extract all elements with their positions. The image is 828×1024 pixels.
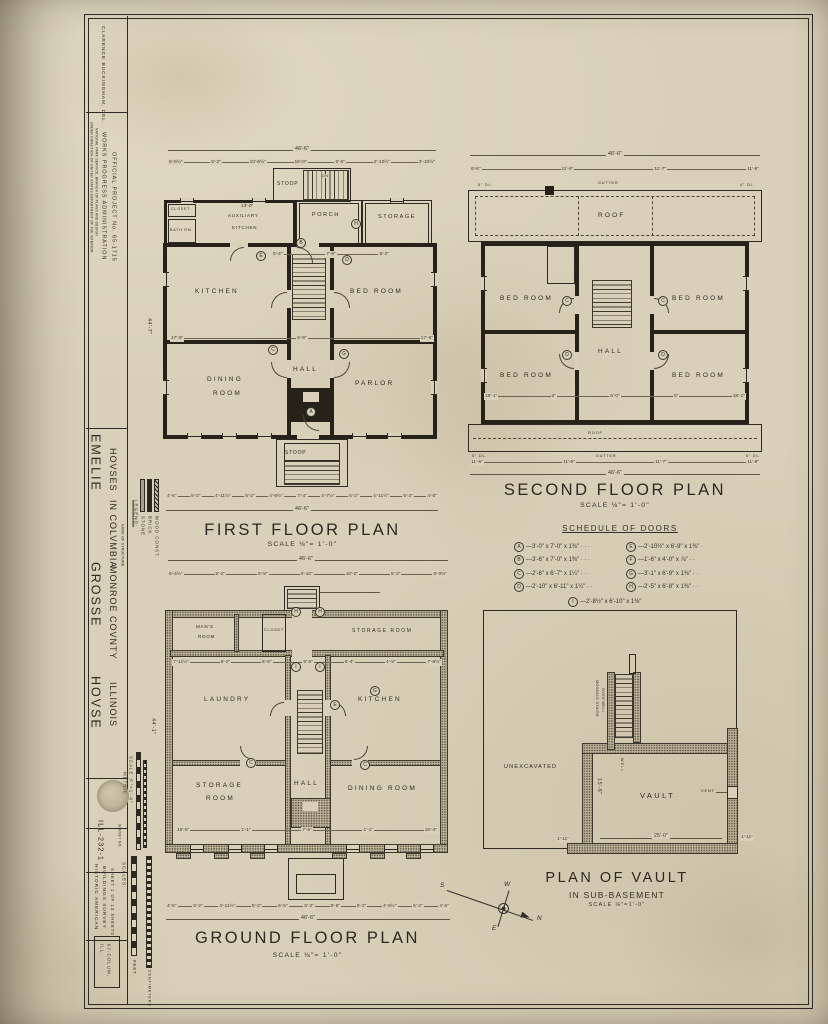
door-letter-mark: C (268, 345, 278, 355)
door-gap (330, 360, 334, 378)
door-letter-mark: C (562, 296, 572, 306)
dimension-label: 5'-2" (303, 903, 315, 910)
dimension-label: 5'-2" (390, 571, 402, 578)
schedule-row: H—2'-5" x 6'-8" x 1⅜" · · (626, 581, 744, 595)
schedule-row: D—2'-10" x 6'-11" x 1¼" · · (514, 581, 622, 595)
survey-number-label: SURVEY NO. (117, 824, 120, 848)
door-letter-circle: I (568, 597, 578, 607)
structure-name-house: HOVSE (89, 676, 102, 730)
dimension-label: 5'-6" (296, 335, 308, 342)
hall-stair (592, 280, 632, 328)
catalog-line-2: 67-COLUM, (106, 944, 111, 977)
dimension-label: 6'-5" (257, 571, 269, 578)
dim-row: 6'-6"11'-9"11'-7"11'-6" (470, 165, 760, 173)
dim-row: 5'-4"7'-6"5'-2" (272, 250, 390, 258)
dashed-wall-line (578, 196, 579, 236)
dimension-label: 7'-11½" (172, 659, 190, 666)
window-opening (257, 433, 272, 439)
vault-scale: SCALE ⅛"=1'-0" (532, 902, 702, 908)
county-label: MONROE COVNTY (108, 566, 117, 660)
dashed-wall-line (652, 196, 653, 236)
vault-depth-dim: 15'-6" (596, 778, 602, 794)
stair-direction-label: DN (322, 174, 329, 178)
pilaster (176, 853, 191, 859)
scale-bar-metric (143, 760, 147, 848)
exterior-wall-right (440, 610, 448, 853)
dimension-label: 4'-5" (426, 493, 438, 500)
window-opening (431, 380, 437, 395)
vault-wall-top (582, 743, 737, 754)
habs-title-2: BUILDINGS SURVEY (100, 866, 105, 929)
room-label-stoop-bottom: STOOP (285, 450, 306, 456)
door-letter-mark: D (342, 255, 352, 265)
schedule-final-row: I —2'-8½" x 6'-10" x 1⅜" (568, 595, 641, 609)
door-letter-mark: E (256, 251, 266, 261)
dimension-label: 5" (551, 393, 557, 400)
dimension-label: 6'-6" (470, 166, 482, 173)
movable-stairs-label-1: MOVABLE STAIRS (594, 680, 598, 717)
dimension-label: 4'-5" (385, 659, 397, 666)
dimension-label: 11'-5" (562, 459, 576, 466)
window-opening (743, 276, 749, 291)
dimension-label: 5'-5" (302, 659, 314, 666)
window-opening (384, 845, 398, 852)
compass-west: W (504, 881, 511, 888)
door-gap (285, 700, 291, 716)
vault-width-dim: 25'-0" (652, 833, 670, 839)
window-opening (481, 368, 487, 383)
dimension-label: 7'-4" (296, 493, 308, 500)
dimension-label: 7'-5" (301, 827, 313, 834)
wpa-project-no: OFFICIAL PROJECT No. 65-1715 (110, 152, 115, 262)
dimension-label: 5'-2" (402, 493, 414, 500)
door-letter-mark: I (315, 662, 325, 672)
closet-partition (262, 614, 286, 652)
door-letter-mark: H (351, 219, 361, 229)
dimension-label: 5'-2" (192, 903, 204, 910)
laundry-storage-wall (172, 760, 286, 766)
pilaster (214, 853, 229, 859)
overall-dim-top: 46'-6" (297, 556, 315, 562)
door-gap (297, 431, 319, 439)
overall-dim-bottom: 46'-6" (606, 470, 624, 476)
dim-row: 16'-5"1'-1"7'-5"1'-1"16'-4" (176, 826, 438, 834)
window-opening (390, 198, 404, 203)
door-size: —2'-5" x 6'-8" x 1⅜" · · (638, 584, 698, 590)
door-letter-mark: D (658, 350, 668, 360)
door-gap (230, 243, 248, 247)
room-label-auxiliary-2: KITCHEN (232, 225, 257, 230)
window-opening (352, 433, 367, 439)
dimension-label: 11'-6" (746, 166, 760, 173)
dim-row: 4'-5"5'-2"4'-11½"5'-2"4'-6½"7'-4"4'-7½"5… (166, 492, 438, 500)
shaft-wall-left (607, 672, 615, 750)
dimension-label: 6'-0½" (432, 571, 448, 578)
downspout-label-tl: 5" DL. (478, 183, 493, 187)
dim-row: 4'-5"5'-2"4'-11½"5'-2"6'-5"5'-2"8'-5"5'-… (166, 902, 450, 910)
room-label-hall: HALL (293, 366, 318, 373)
door-size: —3'-6" x 7'-0" x 1⅜" · · · (526, 557, 590, 563)
mans-room-wall (234, 614, 239, 652)
shaft-wall-right (633, 672, 641, 743)
schedule-row: E—2'-10½" x 6'-9" x 1⅜" · (626, 540, 744, 554)
habs-sheet-count: SHEET 1 OF 13 SHEETS (110, 868, 114, 936)
gutter-label-top: GUTTER (598, 181, 618, 185)
dimension-label: 5'-6½" (168, 159, 184, 166)
door-gap (575, 296, 579, 314)
dimension-label: 5'-2" (190, 493, 202, 500)
pilaster (406, 853, 421, 859)
vault-wall-left (582, 743, 593, 853)
dimension-label: 7'-6" (325, 251, 337, 258)
door-letter-mark: H (291, 607, 301, 617)
door-gap (330, 290, 334, 308)
legend-wood-swatch (154, 479, 159, 512)
room-label-storage-2: ROOM (206, 795, 235, 802)
door-gap (292, 650, 312, 657)
well-label: WELL (619, 758, 623, 772)
window-opening (180, 198, 194, 203)
habs-title-1: HISTORIC AMERICAN (92, 864, 97, 930)
dimension-label: 5'-2" (412, 903, 424, 910)
door-gap (650, 352, 654, 370)
dimension-label: 6'-4" (344, 659, 356, 666)
scales-title: SCALES: (121, 862, 126, 888)
compass-east: E (492, 925, 497, 932)
dimension-label: 4'-11½" (372, 493, 390, 500)
room-label-laundry: LAUNDRY (204, 696, 250, 703)
dimension-label: 11'-8" (746, 459, 760, 466)
dimension-label: 5'-2" (356, 903, 368, 910)
dimension-label: 5'-2" (215, 571, 227, 578)
dimension-label: 5'-2" (210, 159, 222, 166)
door-letter-circle: C (514, 569, 524, 579)
vent-box (727, 786, 738, 799)
context-houses: HOVSES (108, 448, 117, 492)
door-size: —2'-6" x 6'-7" x 1¼" · · · (526, 571, 590, 577)
schedule-row: A—3'-0" x 7'-0" x 1⅜" · · · (514, 540, 622, 554)
areaway-inner (296, 874, 336, 894)
window-opening (431, 272, 437, 287)
title-column-divider (86, 112, 127, 113)
first-floor-title: FIRST FLOOR PLAN (165, 521, 440, 540)
room-label-bedroom: BED ROOM (350, 288, 403, 295)
room-label-hall: HALL (598, 348, 623, 355)
door-gap (650, 296, 654, 314)
room-label-auxiliary-1: AUXILIARY (228, 213, 259, 218)
dimension-label: 10'-2" (345, 571, 359, 578)
dimension-label: 4'-11½" (214, 493, 232, 500)
fireplace-notch (303, 392, 319, 402)
room-label-storage: STORAGE (378, 214, 416, 220)
dimension-label: 5'-6" (334, 159, 346, 166)
dim-row: 11'-6"11'-5"11'-7"11'-8" (470, 458, 760, 466)
door-letter-circle: E (626, 542, 636, 552)
dimension-label: 5'-2" (378, 251, 390, 258)
dimension-label: 6'-0" (609, 393, 621, 400)
vent-leader-line (716, 792, 727, 793)
overall-dim-bottom: 46'-6" (299, 915, 317, 921)
window-opening (190, 845, 204, 852)
side-dim: 44'-7" (146, 318, 152, 334)
dimension-label: 10'-6½" (249, 159, 267, 166)
door-gap (575, 352, 579, 370)
hall-closet (547, 246, 575, 284)
dimension-label: 5'-4" (272, 251, 284, 258)
room-label-mans-2: ROOM (198, 634, 215, 639)
dimension-label: 1'-1" (362, 827, 374, 834)
dimension-label: 4'-10" (300, 571, 314, 578)
schedule-row: G—3'-1" x 6'-9" x 1⅜" · · (626, 567, 744, 581)
window-opening (387, 433, 402, 439)
room-label-kitchen: KITCHEN (195, 288, 239, 295)
dimension-label: 4'-6½" (382, 903, 398, 910)
dimension-label: 5'-2" (220, 659, 232, 666)
pilaster (250, 853, 265, 859)
structure-name-emelie: EMELIE (89, 434, 102, 492)
door-size: —1'-6" x 4'-0" x ⅞" · · (638, 557, 695, 563)
window-opening (481, 276, 487, 291)
vault-wall-dim-left: 1'-11" (556, 836, 570, 843)
compass-north: N (537, 915, 543, 922)
room-label-bed-tl: BED ROOM (500, 295, 553, 302)
overall-dim-top: 46'-6" (606, 151, 624, 157)
aux-width-dim: 13'-0" (240, 203, 254, 210)
room-label-stoop-top: STOOP (277, 181, 298, 187)
door-letter-circle: F (626, 555, 636, 565)
first-floor-scale: SCALE ⅛"= 1'-0" (165, 541, 440, 548)
exterior-wall-bottom (165, 844, 448, 853)
dimension-label: 16'-5" (176, 827, 190, 834)
dimension-label: 6'-5" (261, 659, 273, 666)
window-opening (264, 845, 278, 852)
overall-dim-bottom: 46'-6" (293, 506, 311, 512)
door-letter-circle: D (514, 582, 524, 592)
dimension-label: 4'-5" (438, 903, 450, 910)
dim-row: 5'-6½"5'-2"10'-6½"15'-0"5'-6"2'-10½"3'-1… (168, 158, 436, 166)
door-letter-mark: B (296, 238, 306, 248)
room-label-parlor: PARLOR (355, 380, 394, 387)
room-label-kitchen: KITCHEN (358, 696, 402, 703)
hall-stair (297, 690, 323, 754)
door-size: —2'-10½" x 6'-9" x 1⅜" · (638, 544, 703, 550)
dimension-label: 17'-5" (170, 335, 184, 342)
door-letter-mark: C (658, 296, 668, 306)
dim-row: 7'-11½"5'-2"6'-5"5'-5"6'-4"4'-5"7'-8½" (172, 658, 442, 666)
door-letter-mark: D (562, 350, 572, 360)
room-label-dining: DINING ROOM (348, 785, 417, 792)
room-label-storage-1: STORAGE (196, 782, 243, 789)
exterior-wall-left (165, 610, 173, 853)
stoop-stairs (284, 461, 340, 485)
legend-title: LEGEND: (133, 500, 138, 527)
door-letter-mark: G (370, 686, 380, 696)
context-in-columbia: IN COLVMBIA (108, 500, 117, 568)
scales-feet-label: FEET (132, 960, 136, 975)
hall-stair (292, 254, 326, 320)
door-letter-mark: C (246, 758, 256, 768)
dimension-label: 11'-7" (653, 166, 667, 173)
dimension-label: 18'-1" (732, 393, 746, 400)
legend-stone-label: STONE (140, 516, 144, 536)
fireplace-notch (303, 802, 318, 811)
compass-south: S (440, 882, 445, 889)
dimension-label: 5'-2" (244, 493, 256, 500)
door-letter-mark: E (330, 700, 340, 710)
door-letter-circle: B (514, 555, 524, 565)
window-opening (228, 845, 242, 852)
legend-brick-label: BRICK (147, 516, 151, 534)
schedule-row: F—1'-6" x 4'-0" x ⅞" · · (626, 554, 744, 568)
door-letter-circle: G (626, 569, 636, 579)
room-label-storage-top: STORAGE ROOM (352, 628, 413, 634)
door-size: —2'-8½" x 6'-10" x 1⅜" (580, 599, 641, 605)
grade-line (320, 592, 380, 593)
scales-feet-bar (131, 856, 137, 956)
wpa-title: WORKS PROGRESS ADMINISTRATION (100, 132, 105, 260)
dim-row: 6'-4½"5'-2"6'-5"4'-10"10'-2"5'-2"6'-0½" (168, 570, 448, 578)
room-label-bed-bl: BED ROOM (500, 372, 553, 379)
room-label-hall: HALL (294, 780, 319, 787)
vault-title: PLAN OF VAULT (532, 870, 702, 886)
dimension-label: 4'-7½" (320, 493, 336, 500)
dimension-label: 5'-2" (348, 493, 360, 500)
room-label-mans-1: MAN'S (196, 624, 214, 629)
delineator-credit: CLARENCE BUCKINGHAM, DEL. (99, 26, 104, 124)
dimension-label: 11'-9" (561, 166, 575, 173)
dimension-label: 2'-10½" (373, 159, 391, 166)
scales-centimeters-label: CENTIMETERS (147, 970, 151, 1007)
window-opening (163, 272, 169, 287)
dimension-label: 11'-6" (470, 459, 484, 466)
dimension-label: 4'-6½" (268, 493, 284, 500)
room-label-dining-2: ROOM (213, 390, 242, 397)
window-opening (222, 433, 237, 439)
downspout-label-tr: 4" DL. (740, 183, 755, 187)
dimension-label: 18'-1" (484, 393, 498, 400)
storage-walls (362, 200, 432, 247)
scale-bar-imperial (136, 752, 141, 850)
kitchen-dining-wall (330, 760, 441, 766)
scale-imperial-label: SCALE ⅛"=1'-0" (128, 756, 132, 803)
state-label: ILLINOIS (108, 682, 117, 727)
door-size: —3'-1" x 6'-9" x 1⅜" · · (638, 571, 698, 577)
vent-label: VENT (701, 788, 715, 793)
legend-stone-swatch (140, 479, 145, 512)
wpa-fineprint-1: UNDER DIRECTION OF UNITED STATES DEPARTM… (89, 122, 92, 253)
second-floor-title: SECOND FLOOR PLAN (495, 481, 735, 500)
scales-centimeters-bar (146, 856, 152, 968)
overall-dim-top: 46'-6" (293, 146, 311, 152)
shaft-vent-pipe (629, 654, 636, 674)
survey-number: ILL-232-1 (97, 820, 105, 861)
pilaster (370, 853, 385, 859)
door-size: —2'-10" x 6'-11" x 1¼" · · (526, 584, 593, 590)
legend-brick-swatch (147, 479, 152, 512)
title-column-divider (86, 428, 127, 429)
dimension-label: 11'-7" (654, 459, 668, 466)
schedule-row: C—2'-6" x 6'-7" x 1¼" · · · (514, 567, 622, 581)
room-label-closet: CLOSET (171, 207, 190, 211)
door-letter-mark: H (315, 607, 325, 617)
habs-drawing-sheet: CLARENCE BUCKINGHAM, DEL. UNDER DIRECTIO… (0, 0, 828, 1024)
door-letter-mark: A (306, 407, 316, 417)
dimension-label: 17'-6" (420, 335, 434, 342)
door-letter-mark: I (291, 662, 301, 672)
ground-floor-title: GROUND FLOOR PLAN (165, 929, 450, 948)
movable-stairs-label-2: OVER WELL (600, 688, 604, 713)
scale-metric-label: METRIC (122, 772, 126, 795)
shaft-stairs (615, 674, 633, 738)
dimension-label: 6'-4½" (168, 571, 184, 578)
ground-floor-scale: SCALE ⅛"= 1'-0" (165, 952, 450, 959)
wpa-fineprint-2: NATIONAL PARK SERVICE, BRANCH OF PLANS A… (94, 128, 97, 236)
door-letter-mark: C (360, 760, 370, 770)
roof-dashed-line (473, 438, 757, 439)
room-label-bath: BATH RM. (170, 228, 193, 232)
schedule-row: B—3'-6" x 7'-0" x 1⅜" · · · (514, 554, 622, 568)
door-gap (287, 360, 291, 378)
bed-divide-right (654, 330, 745, 334)
dimension-label: 1'-1" (240, 827, 252, 834)
vault-wall-dim-right: 1'-11" (740, 834, 754, 841)
title-column-divider (86, 778, 127, 779)
structure-name-grosse: GROSSE (89, 562, 102, 628)
dimension-label: 4'-11½" (218, 903, 236, 910)
dimension-label: 4'-5" (166, 903, 178, 910)
window-opening (420, 845, 434, 852)
dimension-label: 5'-2" (251, 903, 263, 910)
door-gap (287, 290, 291, 308)
window-opening (163, 380, 169, 395)
roof-label-bottom: ROOF (588, 430, 603, 435)
dimension-label: 7'-8½" (426, 659, 442, 666)
unexcavated-label: UNEXCAVATED (504, 764, 557, 770)
schedule-column-2: E—2'-10½" x 6'-9" x 1⅜" ·F—1'-6" x 4'-0"… (626, 540, 744, 594)
room-label-bed-br: BED ROOM (672, 372, 725, 379)
legend-wood-label: WOOD CONST. (154, 516, 158, 558)
vault-label: VAULT (640, 791, 675, 800)
room-label-dining-1: DINING (207, 376, 243, 383)
compass-hub (498, 903, 509, 914)
dimension-label: 3'-10½" (418, 159, 436, 166)
room-label-closet: CLOSET (264, 628, 284, 632)
window-opening (187, 433, 202, 439)
vault-wall-bottom (567, 843, 738, 854)
second-floor-scale: SCALE ⅛"= 1'-0" (495, 502, 735, 509)
room-label-porch: PORCH (312, 212, 340, 218)
schedule-column-1: A—3'-0" x 7'-0" x 1⅜" · · ·B—3'-6" x 7'-… (514, 540, 622, 594)
roof-label-top: ROOF (598, 212, 626, 219)
door-letter-mark: G (339, 349, 349, 359)
dimension-label: 4'-5" (166, 493, 178, 500)
dim-row: 17'-5"5'-6"17'-6" (170, 334, 434, 342)
dim-row: 18'-1"5"6'-0"5"18'-1" (484, 392, 746, 400)
door-letter-circle: H (626, 582, 636, 592)
roof-chimney (545, 186, 554, 195)
window-opening (346, 845, 360, 852)
dimension-label: 15'-0" (294, 159, 308, 166)
entry-steps (287, 589, 317, 609)
bed-divide-left (485, 330, 575, 334)
dimension-label: 8'-5" (330, 903, 342, 910)
dimension-label: 16'-4" (424, 827, 438, 834)
catalog-line-1: ILL. (99, 944, 104, 956)
side-dim: 44'-1" (150, 718, 156, 734)
vault-subtitle: IN SUB-BASEMENT (532, 890, 702, 900)
name-of-structure-label: NAME OF STRUCTURE (120, 524, 123, 566)
schedule-title: SCHEDULE OF DOORS (540, 524, 700, 533)
